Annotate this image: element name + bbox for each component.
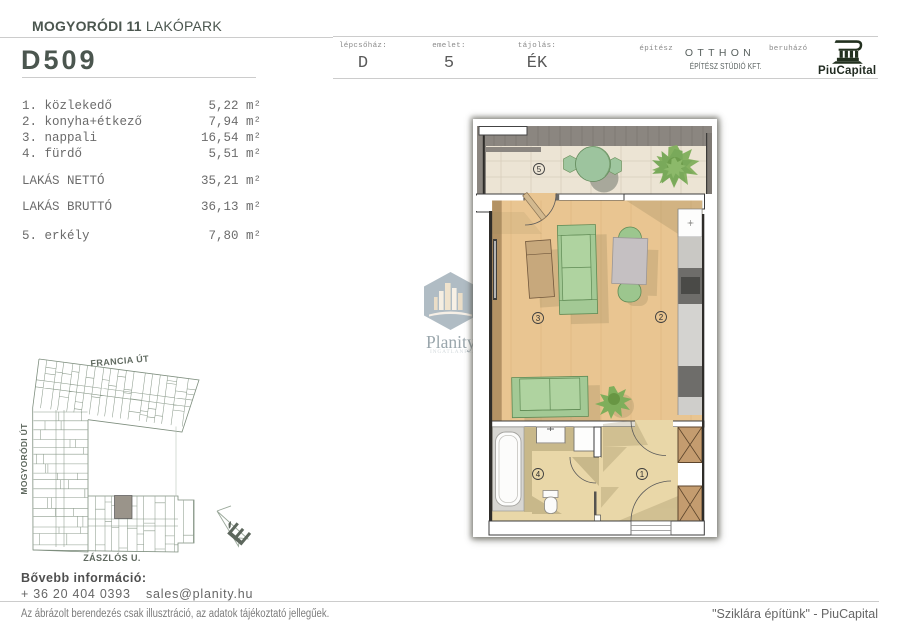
svg-text:MOGYORÓDI ÚT: MOGYORÓDI ÚT [18,423,29,495]
svg-text:1: 1 [640,470,645,479]
svg-text:3: 3 [536,314,541,323]
svg-text:2: 2 [659,313,664,322]
svg-text:4: 4 [536,470,541,479]
svg-text:FRANCIA ÚT: FRANCIA ÚT [90,352,149,368]
svg-text:5: 5 [537,165,542,174]
svg-text:ZÁSZLÓS U.: ZÁSZLÓS U. [83,552,141,563]
